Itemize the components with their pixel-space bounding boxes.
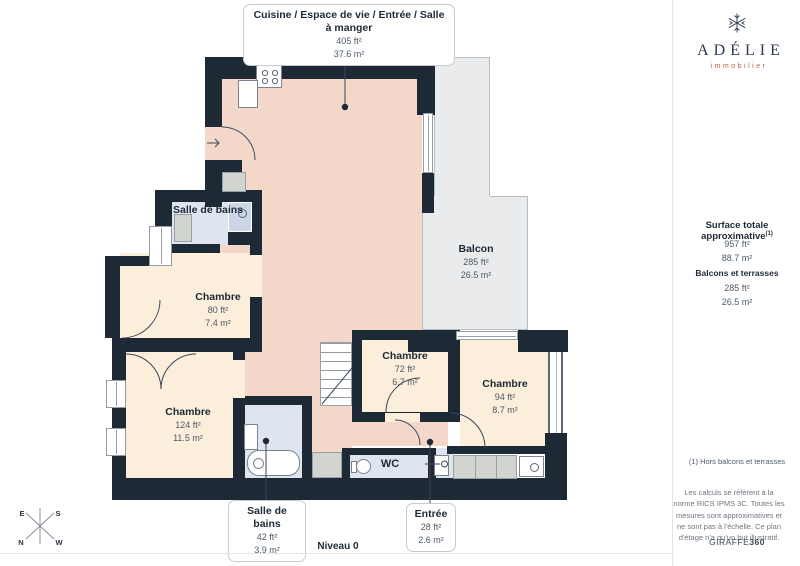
stove-icon [256,64,282,88]
wall [237,396,312,405]
window [456,331,518,340]
callout-kitchen: Cuisine / Espace de vie / Entrée / Salle… [243,4,455,66]
brand-logo [673,12,800,39]
wall [422,173,434,213]
bathtub-icon [247,450,300,476]
room-label-bedroom-72: Chambre 72 ft² 6.7 m² [355,350,455,389]
stairs-icon [320,342,352,406]
room-label-wc: WC [374,458,406,471]
giraffe360-watermark: GIRAFFE360 [673,537,800,547]
wall [228,232,252,245]
sidebar: ADÉLIE immobilier Surface totale approxi… [672,0,800,566]
shower-icon [519,456,544,477]
level-label: Niveau 0 [272,540,404,553]
closet-icon [453,455,517,479]
wall [545,433,567,480]
surface-total-m: 88.7 m² [673,251,800,265]
compass-n: N [18,538,23,547]
window [106,428,126,456]
fixture-icon [434,455,449,476]
cabinet-icon [222,172,246,192]
counter-icon [312,452,342,478]
terrace-title: Balcons et terrasses [673,268,800,278]
wall [350,448,436,455]
compass-w: W [55,538,63,547]
balcony-upper [434,57,490,196]
room-entry-hall [352,422,448,446]
washer-icon [174,214,192,242]
compass-s: S [55,509,60,518]
floor-plan-page: Salle de bains Chambre 80 ft² 7.4 m² Bal… [0,0,800,566]
callout-entry: Entrée 28 ft² 2.6 m² [406,503,456,552]
wall [545,338,568,352]
window [149,226,172,266]
wall [302,396,312,480]
door-opening [233,360,245,398]
wall [112,352,126,478]
toilet-tank-icon [351,461,357,473]
room-label-bedroom-124: Chambre 124 ft² 11.5 m² [133,406,243,445]
balcony-step-line [490,196,528,197]
toilet-icon [356,459,371,474]
snowflake-icon [726,12,748,34]
wall [342,448,350,480]
door-opening [385,413,420,422]
wall [172,244,220,253]
surface-total-ft: 957 ft² [673,237,800,251]
window [106,380,126,408]
kitchen-counter-icon [238,80,258,108]
wall [205,79,222,127]
brand-subtitle: immobilier [673,63,800,70]
window [423,113,433,173]
room-label-bathroom-upper: Salle de bains [166,204,250,217]
compass-e: E [19,509,24,518]
terrace-ft: 285 ft² [673,281,800,295]
compass-rose-icon: E S N W [12,500,68,556]
door-opening [205,127,222,160]
floor-plan: Salle de bains Chambre 80 ft² 7.4 m² Bal… [0,0,672,566]
wall [105,256,120,338]
room-label-balcony: Balcon 285 ft² 26.5 m² [424,243,528,282]
room-label-bedroom-94: Chambre 94 ft² 8.7 m² [455,378,555,417]
wall [447,446,545,454]
page-bottom-rule [0,553,672,554]
sink-icon [244,424,258,450]
disclaimer: Les calculs se réfèrent à la norme RICS … [673,487,785,543]
terrace-m: 26.5 m² [673,295,800,309]
footnote: (1) Hors balcons et terrasses [673,457,800,466]
brand-name: ADÉLIE [673,42,800,60]
wall [112,478,567,500]
room-label-bedroom-80: Chambre 80 ft² 7.4 m² [168,291,268,330]
wall [112,338,252,352]
